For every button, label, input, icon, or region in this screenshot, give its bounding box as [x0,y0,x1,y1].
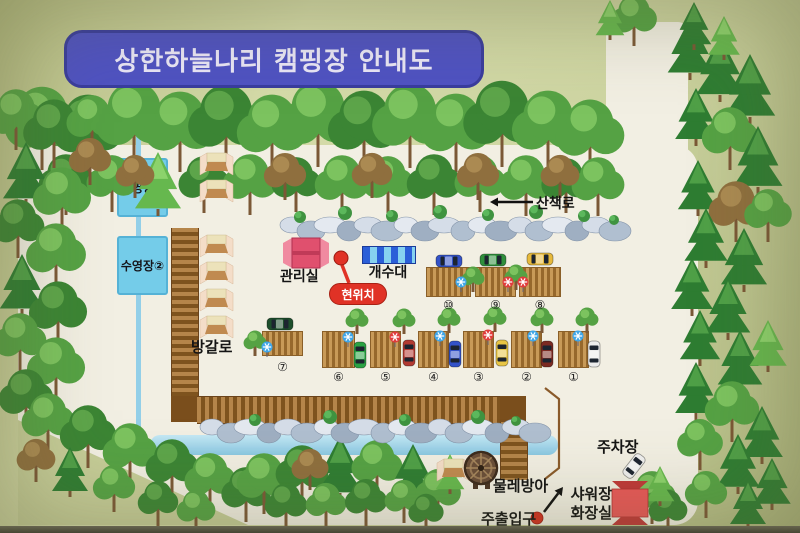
current-location-badge: 현위치 [329,283,387,305]
conifer-tree-icon [741,406,783,464]
conifer-tree-icon [749,320,786,372]
tree-icon [66,95,117,152]
conifer-tree-icon [718,330,763,392]
campsite-number-8: ⑧ [519,298,561,312]
campsite-number-9: ⑨ [475,298,516,312]
campsite-deck-4 [418,331,449,368]
stream-horizontal [150,435,558,455]
map-title: 상한하늘나리 캠핑장 안내도 [64,30,484,88]
campground-map-sign: 수영장① 수영장② ⑩ ⑨ ⑧ ⑦ ⑥ ⑤ ④ ③ ② ① 산책로 관리실 개수… [0,0,800,533]
conifer-tree-icon [708,16,740,60]
conifer-tree-icon [753,458,790,510]
conifer-tree-icon [730,480,766,530]
campsite-deck-1 [558,331,589,368]
current-location-label: 현위치 [341,286,374,303]
campsite-deck-8 [519,267,561,297]
campsite-number-3: ③ [463,370,494,384]
tree-icon [705,381,760,442]
campsite-deck-9 [475,267,516,297]
conifer-tree-icon [734,126,783,194]
campsite-number-10: ⑩ [426,298,471,312]
road-horizontal [197,396,500,424]
swimming-pool-1: 수영장① [117,158,168,217]
conifer-tree-icon [696,36,744,102]
conifer-tree-icon [721,228,767,292]
conifer-tree-icon [706,278,751,340]
conifer-tree-icon [716,434,759,494]
campsite-number-6: ⑥ [322,370,355,384]
campsite-number-5: ⑤ [370,370,401,384]
parking-label: 주차장 [597,436,638,457]
pool1-label: 수영장① [121,179,164,196]
trail-corridor [606,22,688,162]
bungalow-label: 방갈로 [191,336,232,357]
campsite-number-4: ④ [418,370,449,384]
campsite-number-2: ② [511,370,542,384]
road-vertical-right [500,422,528,480]
campsite-number-1: ① [558,370,589,384]
sign-edge [0,526,800,533]
campsite-deck-5 [370,331,401,368]
campsite-deck-7 [262,331,303,356]
road-corner [171,396,197,422]
shower-label: 샤워장 [566,483,612,504]
swimming-pool-2: 수영장② [117,236,168,295]
tree-icon [709,181,764,242]
toilet-label: 화장실 [566,502,612,523]
campsite-deck-6 [322,331,355,368]
sink-label: 개수대 [358,262,418,282]
road-vertical-left [171,228,199,398]
pool2-label: 수영장② [121,257,164,274]
trail-label: 산책로 [536,193,575,213]
campsite-number-7: ⑦ [262,360,303,374]
office-label: 관리실 [280,266,319,286]
waterwheel-label: 물레방아 [493,475,548,496]
tree-icon [0,89,43,150]
campsite-deck-10 [426,267,471,297]
map-title-text: 상한하늘나리 캠핑장 안내도 [114,41,433,78]
conifer-tree-icon [725,54,775,124]
tree-icon [744,189,792,242]
campsite-deck-2 [511,331,542,368]
tree-icon [702,107,758,170]
road-corner [500,396,526,422]
campsite-deck-3 [463,331,494,368]
